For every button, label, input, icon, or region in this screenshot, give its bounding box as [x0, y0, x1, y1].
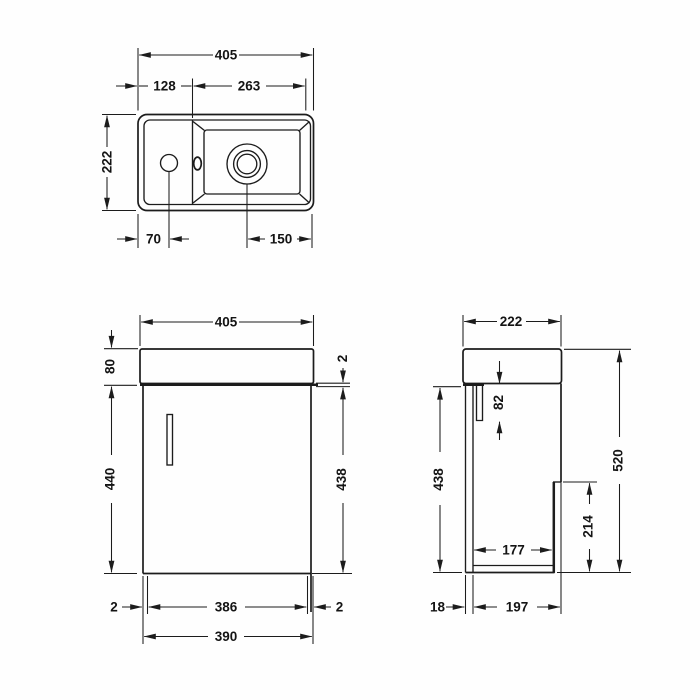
svg-text:405: 405 — [215, 315, 238, 330]
dim-front-overall-width: 405 — [140, 315, 314, 347]
svg-text:128: 128 — [153, 79, 176, 94]
dim-side-recess-height: 214 — [563, 482, 597, 571]
bowl-chamfers — [193, 122, 310, 204]
svg-text:405: 405 — [215, 48, 238, 63]
svg-text:80: 80 — [103, 359, 118, 374]
dim-plan-tap-offset: 70 — [117, 214, 189, 248]
basin-front — [140, 349, 314, 384]
svg-text:2: 2 — [336, 600, 344, 615]
tap-hole — [161, 155, 178, 172]
dim-side-bottom-depths: 18 197 — [430, 575, 560, 615]
plan-view: 405 128 263 222 70 — [100, 48, 314, 249]
dim-side-overall-depth: 222 — [463, 314, 561, 347]
dim-side-overall-height: 520 — [557, 349, 631, 572]
svg-text:222: 222 — [100, 151, 115, 174]
dim-front-door-heights: 2 438 — [312, 355, 352, 574]
svg-text:438: 438 — [431, 468, 446, 491]
svg-text:520: 520 — [611, 449, 626, 472]
basin-outline-plan — [138, 115, 314, 211]
dim-side-bracket-recess: 82 — [491, 361, 506, 440]
dim-plan-waste-offset: 150 — [248, 214, 312, 248]
svg-text:386: 386 — [215, 600, 238, 615]
dim-front-heights: 80 440 — [103, 330, 139, 574]
svg-text:177: 177 — [502, 543, 525, 558]
overflow-slot — [194, 157, 202, 170]
side-view: 222 82 438 520 214 — [430, 314, 631, 615]
dim-plan-overall-depth: 222 — [100, 115, 137, 211]
svg-text:438: 438 — [334, 468, 349, 491]
hanger-bracket-recess — [477, 386, 483, 421]
basin-bowl — [204, 130, 300, 194]
dim-plan-deck-and-bowl: 128 263 — [116, 79, 306, 119]
svg-text:197: 197 — [506, 600, 529, 615]
dim-side-internal-depth: 177 — [474, 543, 551, 558]
technical-drawing: 405 128 263 222 70 — [0, 0, 700, 700]
svg-text:222: 222 — [500, 314, 523, 329]
svg-text:82: 82 — [491, 395, 506, 410]
svg-text:390: 390 — [215, 629, 238, 644]
front-view: 405 80 440 2 438 — [103, 315, 353, 645]
dim-side-back-height: 438 — [431, 387, 462, 573]
svg-text:150: 150 — [270, 232, 293, 247]
basin-side — [463, 349, 562, 384]
svg-text:263: 263 — [238, 79, 261, 94]
svg-text:440: 440 — [103, 468, 118, 491]
drawing-canvas: 405 128 263 222 70 — [0, 0, 700, 700]
svg-text:214: 214 — [581, 515, 596, 538]
svg-text:70: 70 — [146, 232, 161, 247]
svg-text:2: 2 — [335, 355, 350, 363]
door-handle-slot — [167, 415, 173, 466]
dim-front-bottom-widths: 2 386 2 390 — [110, 576, 343, 644]
waste-drain — [227, 144, 267, 184]
svg-text:2: 2 — [110, 600, 118, 615]
svg-text:18: 18 — [430, 600, 446, 615]
